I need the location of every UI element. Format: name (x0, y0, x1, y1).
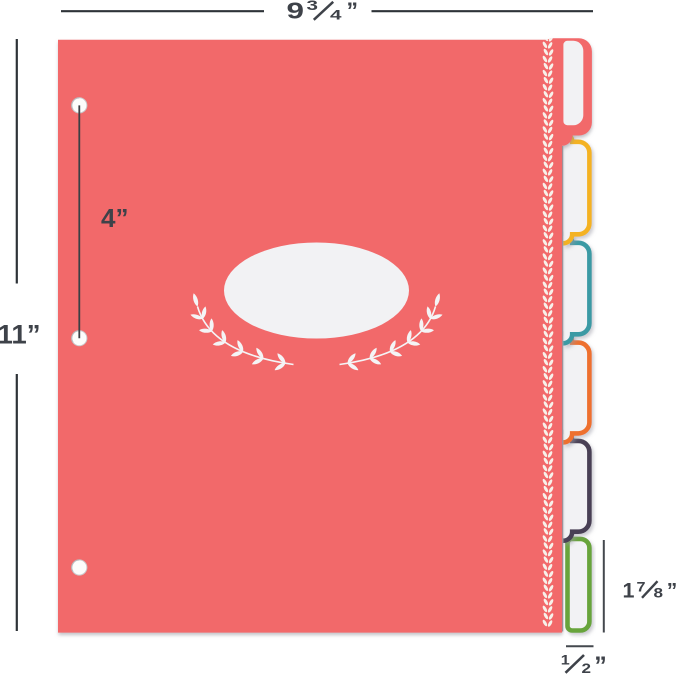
svg-text:”: ” (347, 0, 359, 24)
svg-text:4”: 4” (101, 203, 128, 233)
svg-text:”: ” (667, 578, 678, 602)
svg-text:2: 2 (582, 661, 592, 675)
svg-text:9: 9 (287, 0, 305, 24)
svg-text:4: 4 (330, 7, 342, 22)
svg-text:7: 7 (637, 579, 646, 594)
svg-text:8: 8 (654, 585, 664, 600)
svg-text:1: 1 (623, 578, 635, 602)
svg-text:1: 1 (561, 652, 571, 667)
svg-text:”: ” (594, 651, 607, 675)
svg-text:11”: 11” (0, 320, 41, 350)
svg-text:3: 3 (307, 0, 319, 13)
